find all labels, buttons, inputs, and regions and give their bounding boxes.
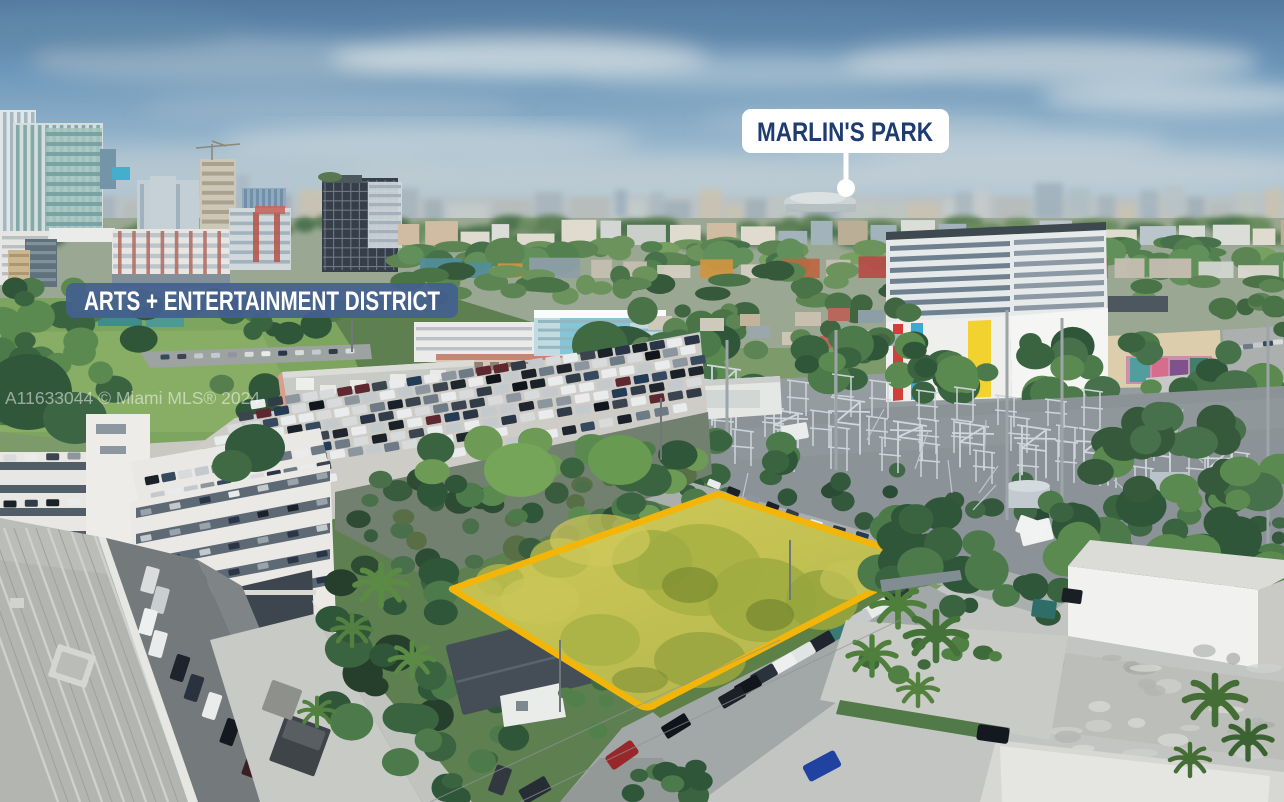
svg-text:ARTS + ENTERTAINMENT DISTRICT: ARTS + ENTERTAINMENT DISTRICT xyxy=(84,286,440,316)
svg-text:A11633044 © Miami MLS® 2024: A11633044 © Miami MLS® 2024 xyxy=(5,388,260,408)
svg-text:MARLIN'S PARK: MARLIN'S PARK xyxy=(757,117,933,147)
